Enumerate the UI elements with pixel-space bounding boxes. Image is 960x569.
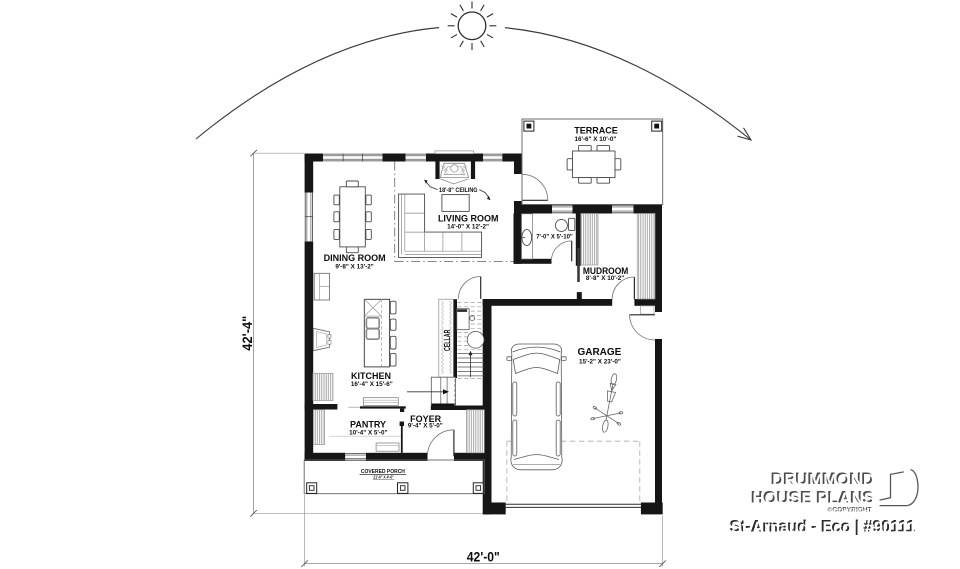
svg-text:8'-8" X 10'-2": 8'-8" X 10'-2" <box>586 275 624 282</box>
svg-text:9'-8" X 13'-2": 9'-8" X 13'-2" <box>335 264 373 271</box>
svg-text:42'-4": 42'-4" <box>239 316 255 351</box>
svg-text:TERRACE: TERRACE <box>574 125 618 135</box>
svg-text:CELLAR: CELLAR <box>442 330 452 352</box>
svg-text:GARAGE: GARAGE <box>577 347 621 358</box>
svg-text:16'-6" X 10'-0": 16'-6" X 10'-0" <box>574 136 616 143</box>
svg-text:KITCHEN: KITCHEN <box>351 371 391 381</box>
svg-text:42'-0": 42'-0" <box>467 549 500 565</box>
svg-text:St-Arnaud - Eco | #90111: St-Arnaud - Eco | #90111 <box>731 519 917 537</box>
svg-text:10'-4" X 5'-0": 10'-4" X 5'-0" <box>349 430 387 437</box>
svg-text:16'-4" X 15'-6": 16'-4" X 15'-6" <box>351 381 393 388</box>
svg-text:LIVING ROOM: LIVING ROOM <box>438 214 499 224</box>
svg-text:HOUSE PLANS: HOUSE PLANS <box>752 489 875 508</box>
svg-text:14'-0" X 12'-2": 14'-0" X 12'-2" <box>447 224 489 231</box>
svg-text:18'-8" CEILING: 18'-8" CEILING <box>439 188 478 194</box>
svg-text:7'-0" X 5'-10": 7'-0" X 5'-10" <box>536 235 573 241</box>
svg-text:©COPYRIGHT: ©COPYRIGHT <box>829 507 873 515</box>
svg-text:21'-0" X 4'-0": 21'-0" X 4'-0" <box>373 475 394 480</box>
svg-text:PANTRY: PANTRY <box>350 420 386 430</box>
svg-text:15'-2" X 23'-0": 15'-2" X 23'-0" <box>579 358 621 365</box>
svg-text:DINING ROOM: DINING ROOM <box>324 253 386 263</box>
svg-text:9'-4" X 5'-0": 9'-4" X 5'-0" <box>408 423 443 430</box>
